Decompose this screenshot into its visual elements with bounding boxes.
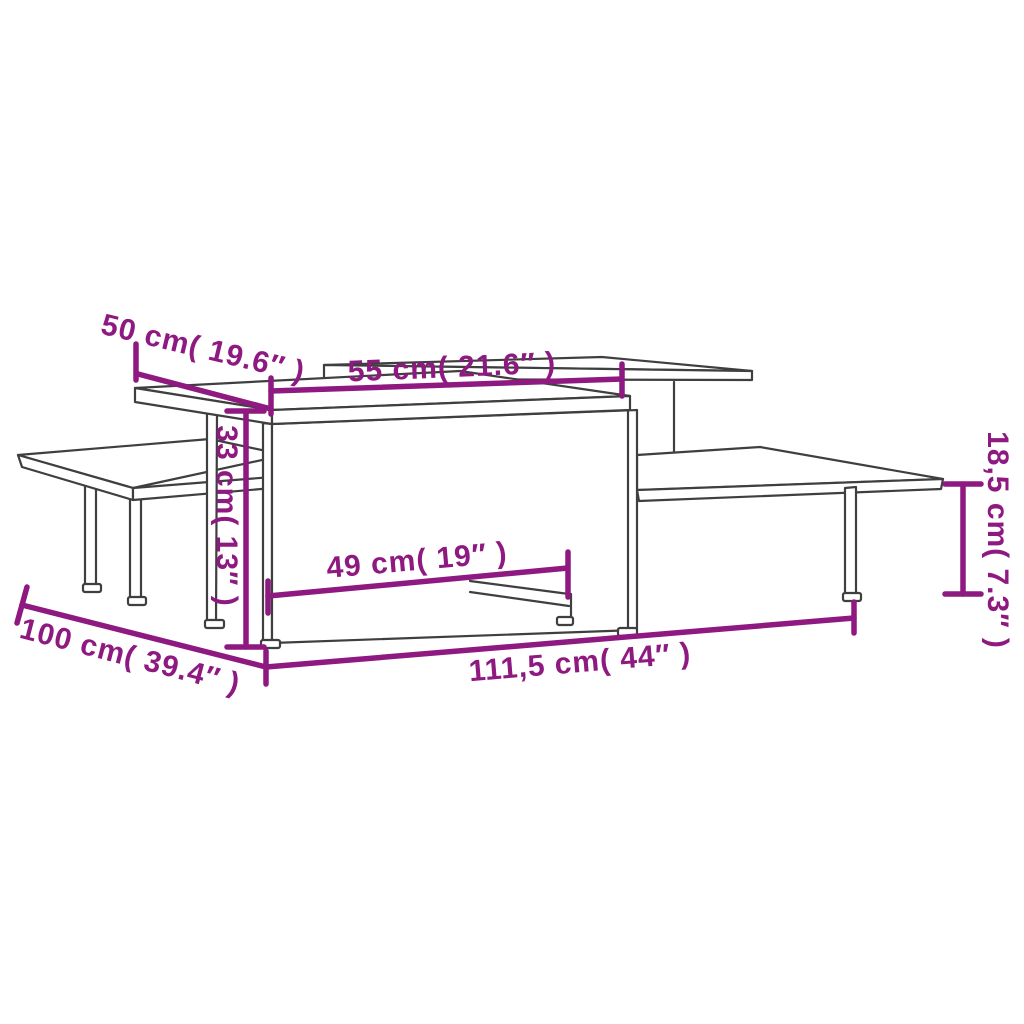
dim-line-18-5 <box>945 484 981 594</box>
furniture-drawing <box>0 0 1024 1024</box>
product-dimension-diagram: 50 cm( 19.6″ ) 55 cm( 21.6″ ) 33 cm( 13″… <box>0 0 1024 1024</box>
dim-label-height-tall: 33 cm( 13″ ) <box>209 425 243 606</box>
dim-label-height-low: 18,5 cm( 7.3″ ) <box>980 431 1014 649</box>
tall-table-front <box>261 410 637 648</box>
right-table-lower-top <box>637 447 943 601</box>
